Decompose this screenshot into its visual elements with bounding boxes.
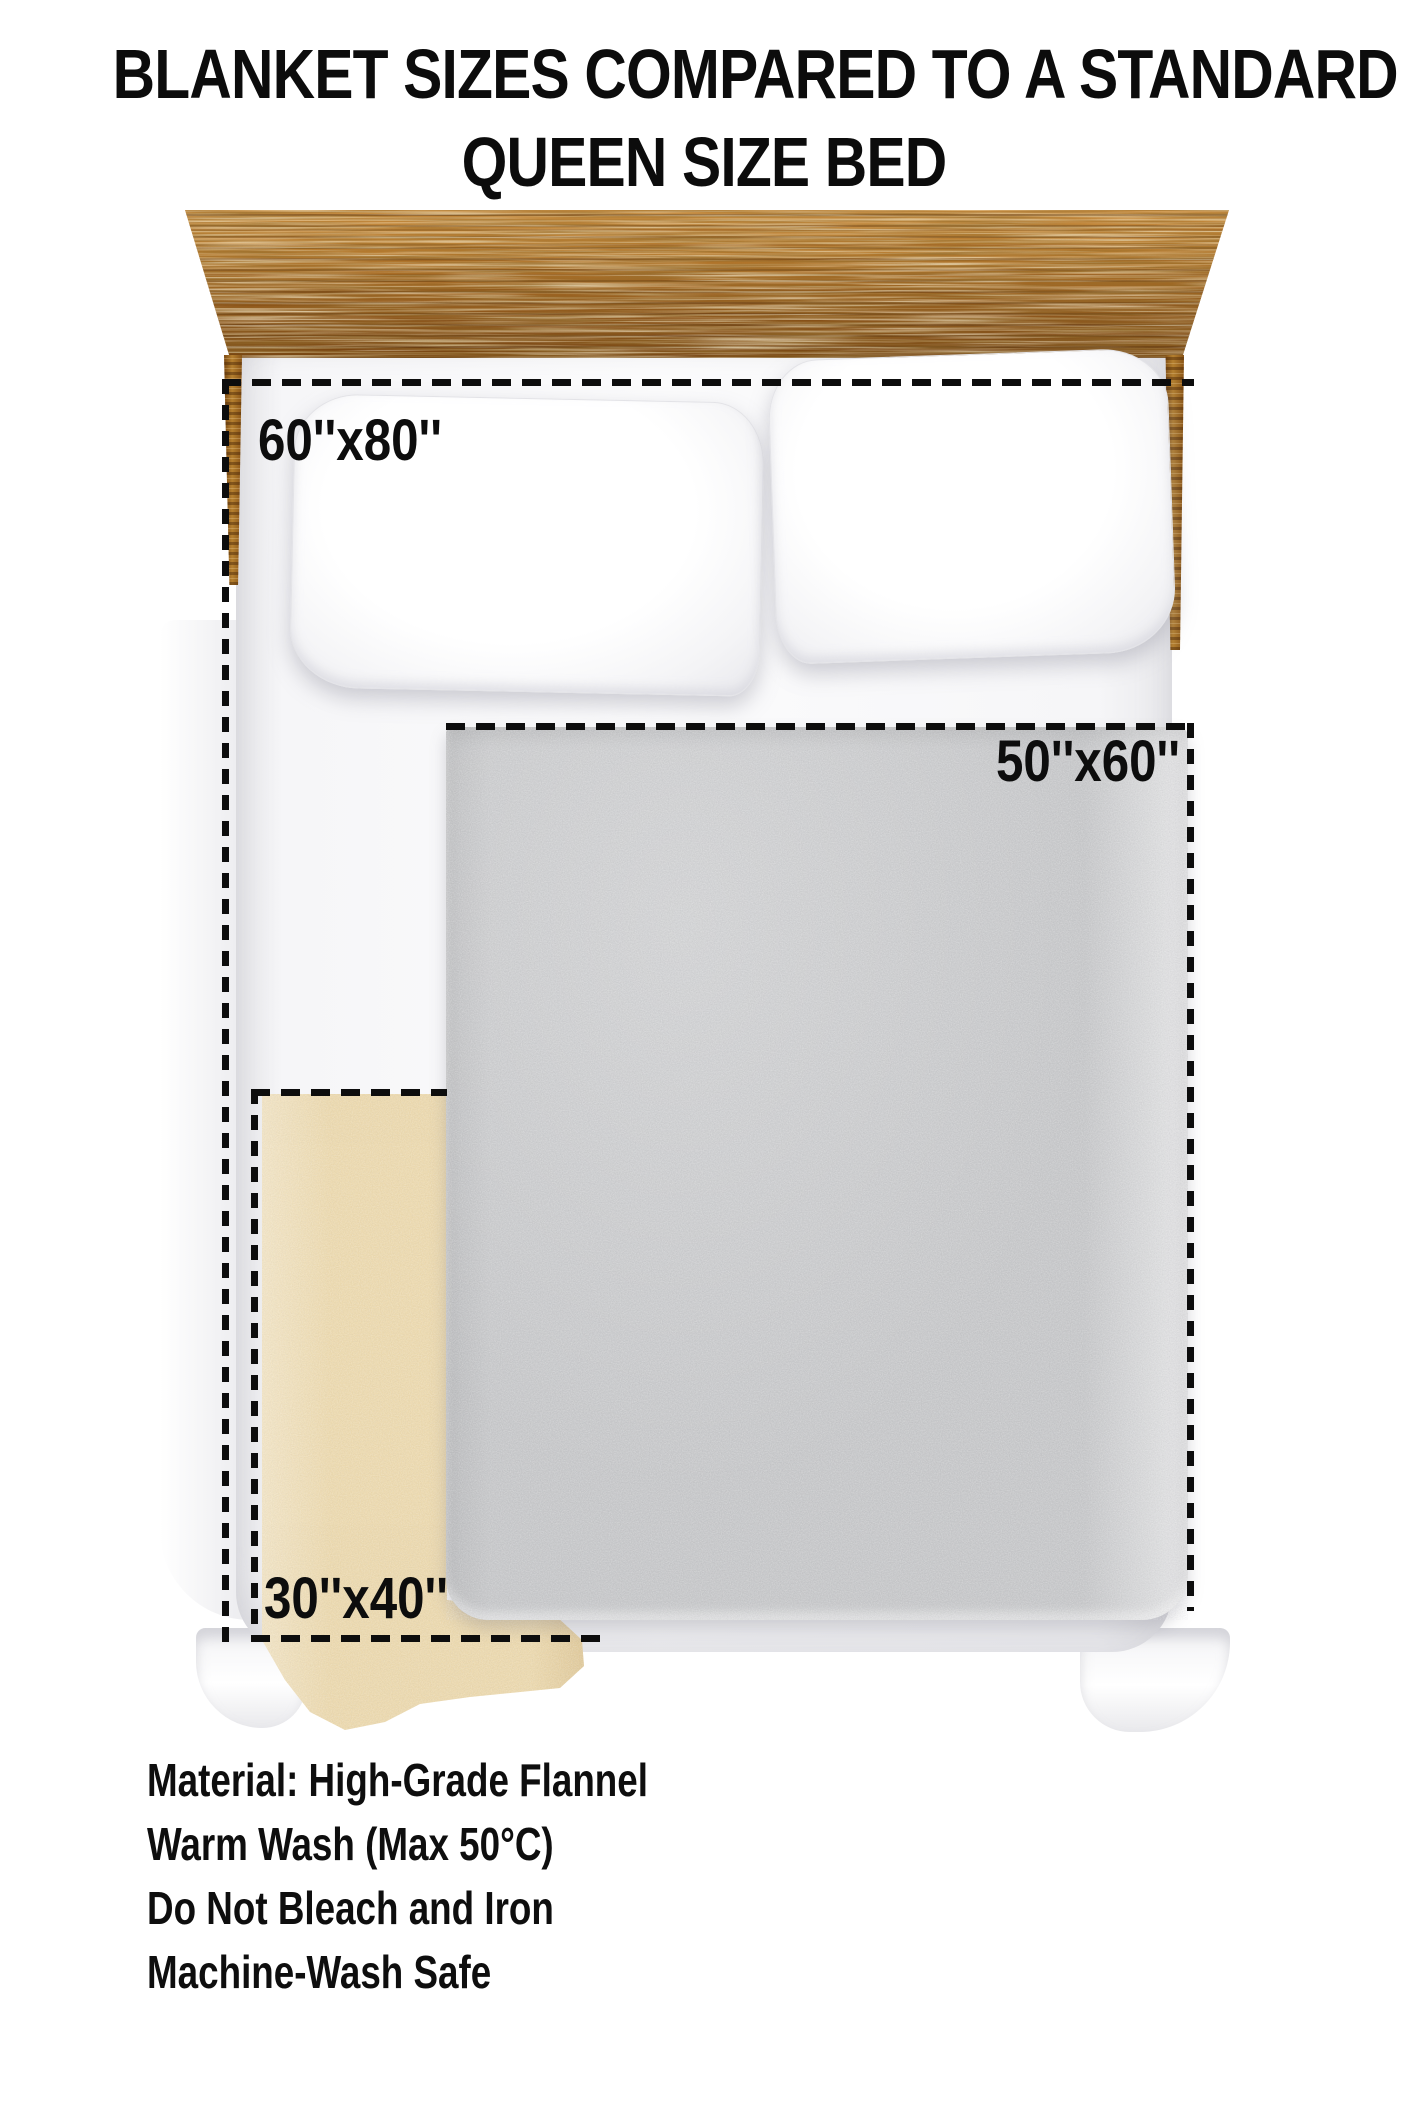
fleece-texture — [446, 727, 1188, 1620]
size-label-50x60: 50''x60'' — [925, 731, 1180, 793]
small-outline-bottom-dash — [251, 1635, 603, 1642]
wood-texture — [183, 209, 1231, 359]
pillow-right — [767, 347, 1177, 665]
small-outline-top-dash — [251, 1089, 447, 1096]
care-line-material: Material: High-Grade Flannel — [147, 1748, 648, 1812]
page-title: BLANKET SIZES COMPARED TO A STANDARD QUE… — [0, 30, 1408, 206]
queen-outline-left-dash — [222, 379, 229, 1645]
care-line-bleach: Do Not Bleach and Iron — [147, 1876, 648, 1940]
infographic-canvas: BLANKET SIZES COMPARED TO A STANDARD QUE… — [0, 0, 1408, 2112]
page-title-line-2: QUEEN SIZE BED — [113, 118, 1296, 206]
care-info: Material: High-Grade Flannel Warm Wash (… — [147, 1748, 773, 2004]
bed-headboard — [183, 209, 1231, 359]
size-label-60x80: 60''x80'' — [258, 410, 442, 472]
care-line-machine: Machine-Wash Safe — [147, 1940, 648, 2004]
queen-outline-top-dash — [222, 379, 1194, 386]
size-label-30x40: 30''x40'' — [264, 1568, 448, 1630]
blanket-50x60 — [446, 727, 1188, 1620]
medium-outline-right-dash — [1187, 723, 1194, 1611]
page-title-line-1: BLANKET SIZES COMPARED TO A STANDARD — [113, 30, 1296, 118]
care-line-wash: Warm Wash (Max 50°C) — [147, 1812, 648, 1876]
small-outline-left-dash — [251, 1089, 258, 1642]
